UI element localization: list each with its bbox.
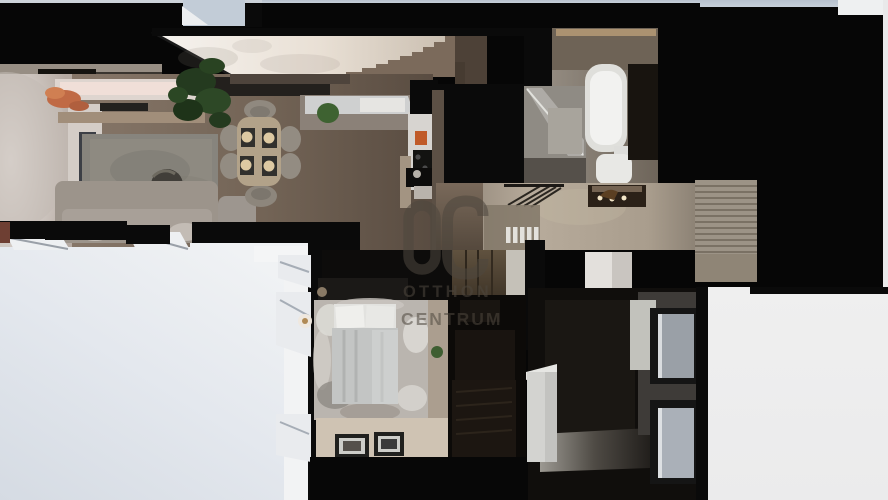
svg-text:OTTHON: OTTHON [403, 283, 492, 301]
svg-text:CENTRUM: CENTRUM [401, 309, 503, 329]
